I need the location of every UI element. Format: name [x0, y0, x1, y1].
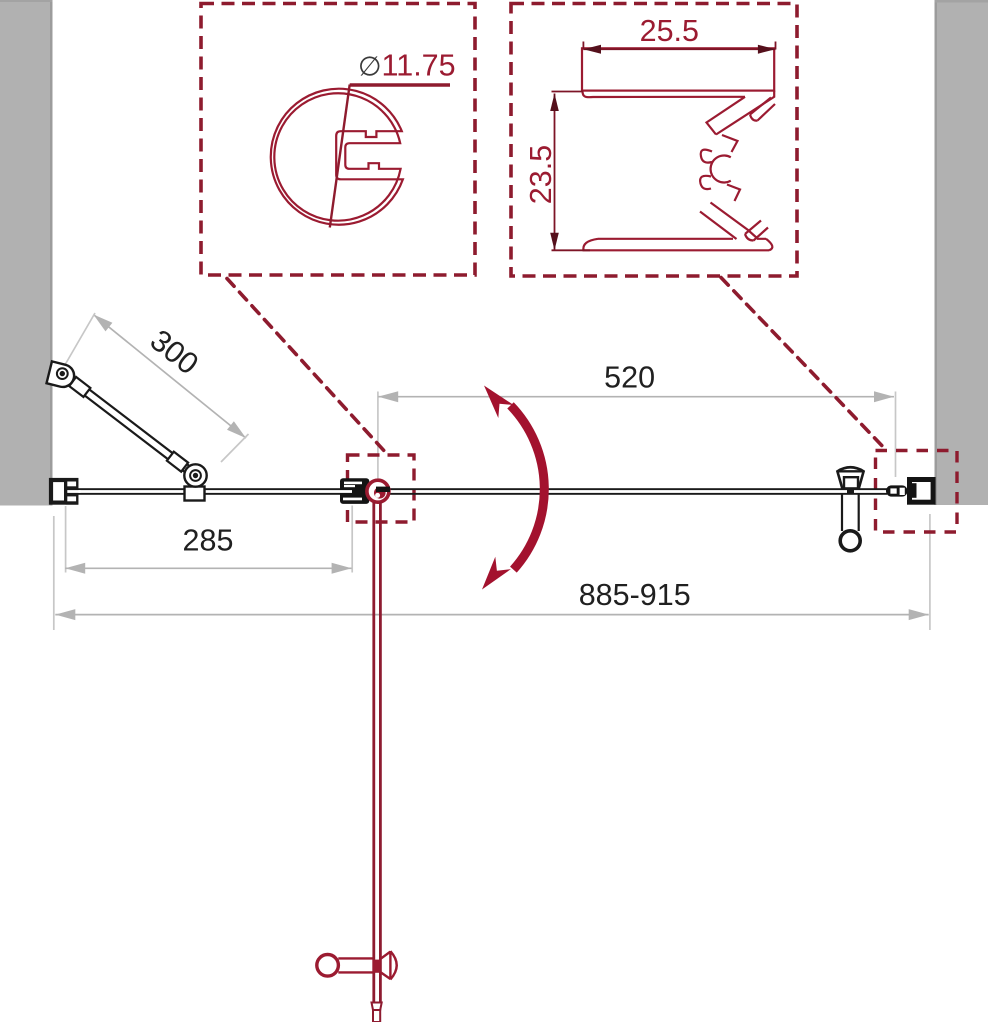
svg-text:285: 285	[183, 523, 234, 557]
svg-text:885-915: 885-915	[579, 578, 691, 612]
svg-text:∅11.75: ∅11.75	[358, 49, 456, 83]
svg-text:300: 300	[144, 323, 205, 381]
svg-text:23.5: 23.5	[524, 145, 558, 204]
svg-text:520: 520	[604, 361, 655, 395]
svg-text:25.5: 25.5	[640, 14, 699, 48]
